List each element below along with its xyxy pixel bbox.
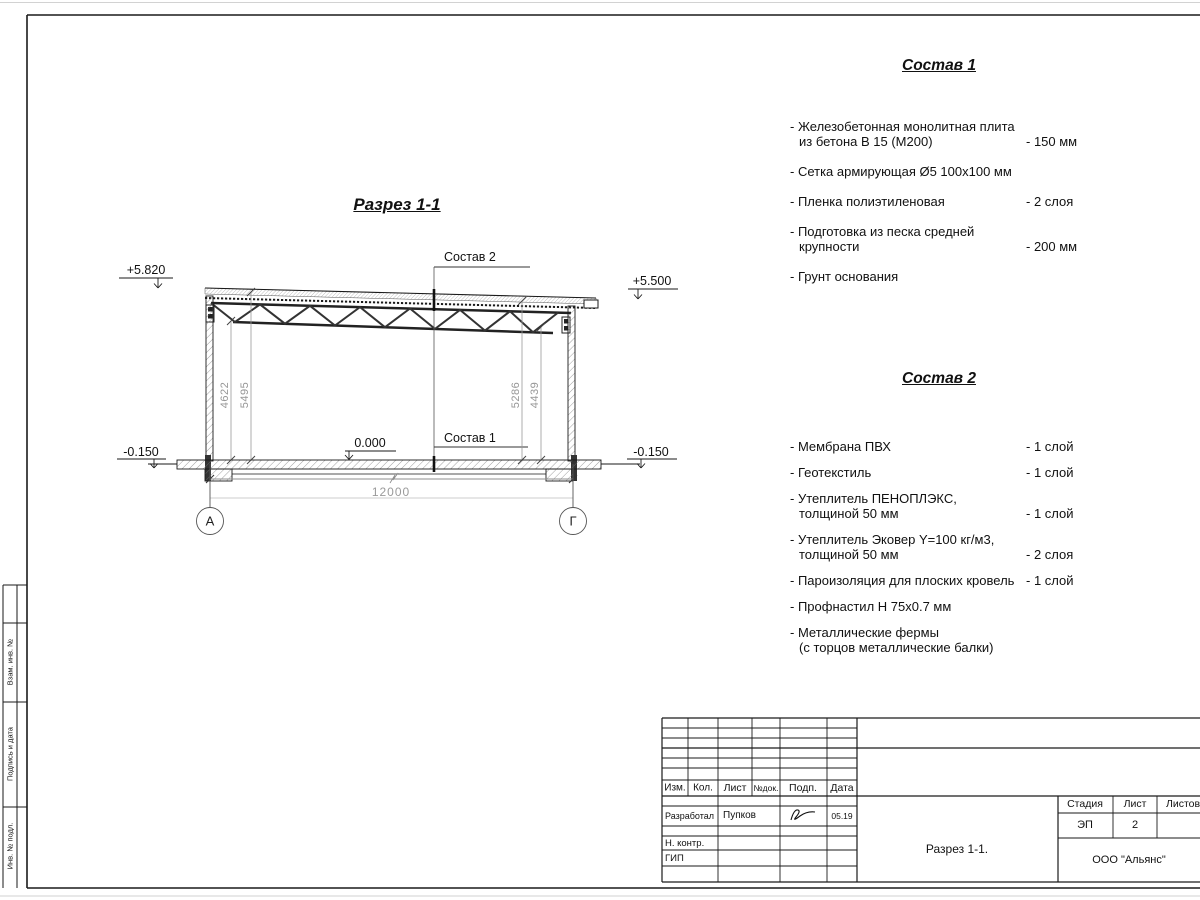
tb-header-kol: Кол. xyxy=(693,783,713,794)
list-item-value: - 2 слоя xyxy=(1026,547,1088,562)
tb-header-list: Лист xyxy=(724,782,747,794)
tb-label-stage: Стадия xyxy=(1067,798,1103,810)
floor-slab xyxy=(177,460,601,469)
list-item: - Грунт основания xyxy=(790,269,1088,284)
list-item-name: - Металлические фермы (с торцов металлич… xyxy=(790,625,1026,655)
list-item: - Утеплитель Эковер Y=100 кг/м3, толщино… xyxy=(790,532,1088,562)
composition-list-2: Состав 2 - Мембрана ПВХ - 1 слой - Геоте… xyxy=(790,370,1088,666)
list-item-name: - Железобетонная монолитная плита из бет… xyxy=(790,119,1026,149)
list-item-name: - Пароизоляция для плоских кровель xyxy=(790,573,1026,588)
roof-edge-cap xyxy=(584,300,598,308)
list-item-name: - Геотекстиль xyxy=(790,465,1026,480)
list-item: - Профнастил Н 75х0.7 мм xyxy=(790,599,1088,614)
list-item-value: - 1 слой xyxy=(1026,506,1088,521)
tb-stage-value: ЭП xyxy=(1077,819,1093,831)
strip-label-inv: Инв. № подл. xyxy=(6,823,15,870)
dim-right-inner: 5286 xyxy=(510,382,522,408)
list-item-name: - Утеплитель ПЕНОПЛЭКС, толщиной 50 мм xyxy=(790,491,1026,521)
section-title: Разрез 1-1 xyxy=(353,195,440,215)
tb-company: ООО "Альянс" xyxy=(1092,854,1166,866)
tb-name-developed: Пупков xyxy=(723,810,756,821)
right-wall xyxy=(568,306,575,461)
list-item-name: - Профнастил Н 75х0.7 мм xyxy=(790,599,1026,614)
truss-bottom-chord xyxy=(233,322,553,333)
list-item-value: - 1 слой xyxy=(1026,573,1088,588)
list-item: - Подготовка из песка средней крупности … xyxy=(790,224,1088,254)
axis-label-left: А xyxy=(206,514,215,529)
list-item: - Утеплитель ПЕНОПЛЭКС, толщиной 50 мм -… xyxy=(790,491,1088,521)
strip-label-vzam: Взам. инв. № xyxy=(6,639,15,685)
level-top-right: +5.500 xyxy=(633,274,672,288)
tb-header-izm: Изм. xyxy=(664,783,685,794)
tb-doc-title: Разрез 1-1. xyxy=(926,842,988,856)
composition-list-1: Состав 1 - Железобетонная монолитная пли… xyxy=(790,57,1088,299)
list-item-name: - Мембрана ПВХ xyxy=(790,439,1026,454)
list-item-name: - Подготовка из песка средней крупности xyxy=(790,224,1026,254)
axis-label-right: Г xyxy=(569,514,576,529)
dim-right-outer: 4439 xyxy=(529,382,541,408)
tb-role-ncontrol: Н. контр. xyxy=(665,838,704,849)
list-item: - Мембрана ПВХ - 1 слой xyxy=(790,439,1088,454)
tb-header-podp: Подп. xyxy=(789,782,817,794)
level-zero: 0.000 xyxy=(354,436,385,450)
list-item-name: - Пленка полиэтиленовая xyxy=(790,194,1026,209)
list-item-name: - Утеплитель Эковер Y=100 кг/м3, толщино… xyxy=(790,532,1026,562)
list-item-value: - 200 мм xyxy=(1026,239,1088,254)
list-item-value: - 2 слоя xyxy=(1026,194,1088,209)
level-bottom-left: -0.150 xyxy=(123,445,158,459)
level-top-left: +5.820 xyxy=(127,263,166,277)
tb-date-developed: 05.19 xyxy=(831,811,852,821)
dim-ticks xyxy=(227,288,545,464)
left-wall xyxy=(206,296,213,461)
list-item: - Железобетонная монолитная плита из бет… xyxy=(790,119,1088,149)
tb-label-sheet: Лист xyxy=(1124,798,1147,810)
list-item: - Сетка армирующая Ø5 100х100 мм xyxy=(790,164,1088,179)
list-item-value: - 150 мм xyxy=(1026,134,1088,149)
tb-header-ndok: №док. xyxy=(754,783,779,793)
list-item: - Геотекстиль - 1 слой xyxy=(790,465,1088,480)
dim-left-outer: 5495 xyxy=(239,382,251,408)
strip-label-podpis: Подпись и дата xyxy=(6,727,15,781)
signature-scribble xyxy=(791,810,815,820)
axis-marks xyxy=(197,464,587,535)
callout-roof: Состав 2 xyxy=(444,250,496,264)
callout-floor: Состав 1 xyxy=(444,431,496,445)
list-item-value: - 1 слой xyxy=(1026,465,1088,480)
tb-label-sheets: Листов xyxy=(1166,798,1200,810)
drawing-sheet: Разрез 1-1 +5.820 +5.500 0.000 -0.150 -0… xyxy=(0,0,1200,900)
list-item: - Пленка полиэтиленовая - 2 слоя xyxy=(790,194,1088,209)
tb-header-data: Дата xyxy=(830,782,853,794)
composition-1-title: Состав 1 xyxy=(790,57,1088,75)
dim-left-inner: 4622 xyxy=(219,382,231,408)
list-item: - Пароизоляция для плоских кровель - 1 с… xyxy=(790,573,1088,588)
list-item-name: - Сетка армирующая Ø5 100х100 мм xyxy=(790,164,1026,179)
tb-role-gip: ГИП xyxy=(665,853,684,864)
tb-sheet-value: 2 xyxy=(1132,819,1138,831)
composition-2-title: Состав 2 xyxy=(790,370,1088,388)
dim-span: 12000 xyxy=(372,485,410,499)
level-bottom-right: -0.150 xyxy=(633,445,668,459)
list-item-value: - 1 слой xyxy=(1026,439,1088,454)
list-item-name: - Грунт основания xyxy=(790,269,1026,284)
list-item: - Металлические фермы (с торцов металлич… xyxy=(790,625,1088,655)
tb-role-developed: Разработал xyxy=(665,811,714,821)
